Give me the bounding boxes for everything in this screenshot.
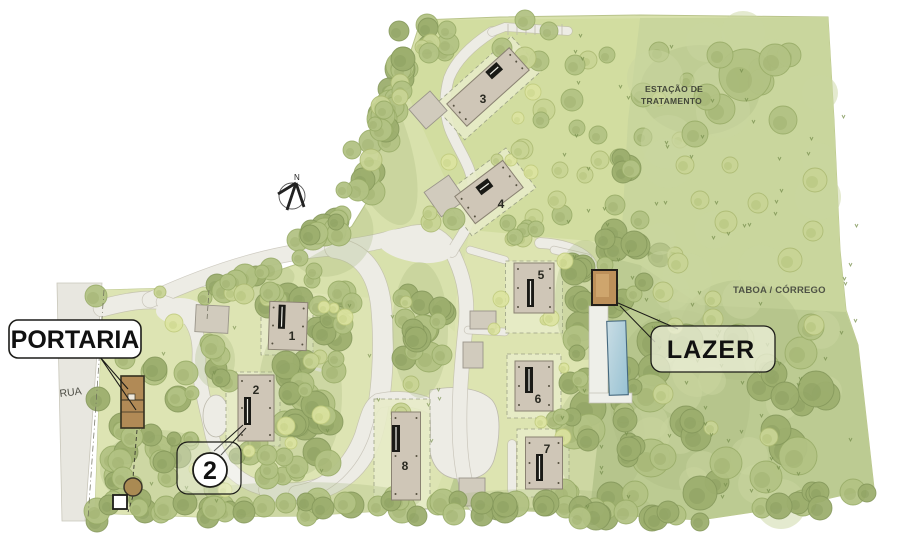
svg-text:7: 7 [544, 442, 551, 456]
svg-text:TRATAMENTO: TRATAMENTO [641, 96, 702, 106]
svg-text:4: 4 [498, 197, 505, 211]
svg-text:6: 6 [535, 392, 542, 406]
svg-text:2: 2 [203, 457, 217, 485]
svg-text:5: 5 [538, 268, 545, 282]
svg-text:1: 1 [289, 329, 296, 343]
svg-text:2: 2 [253, 383, 260, 397]
svg-text:LAZER: LAZER [667, 336, 755, 364]
svg-text:3: 3 [480, 92, 487, 106]
svg-text:PORTARIA: PORTARIA [11, 326, 140, 354]
svg-text:N: N [294, 173, 300, 182]
svg-text:ESTAÇÃO DE: ESTAÇÃO DE [645, 84, 703, 94]
svg-text:TABOA / CÓRREGO: TABOA / CÓRREGO [733, 284, 826, 296]
svg-text:8: 8 [402, 459, 409, 473]
